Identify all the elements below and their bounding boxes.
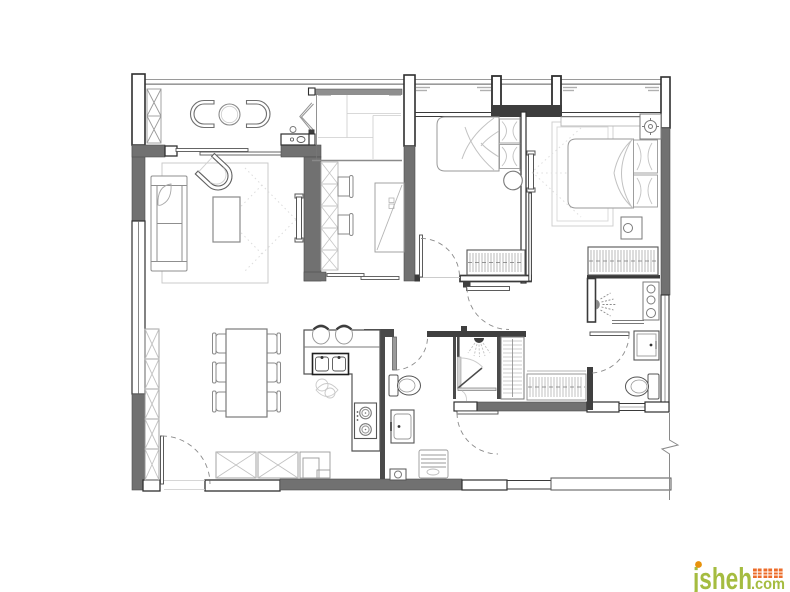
svg-text:.com: .com	[751, 576, 785, 592]
